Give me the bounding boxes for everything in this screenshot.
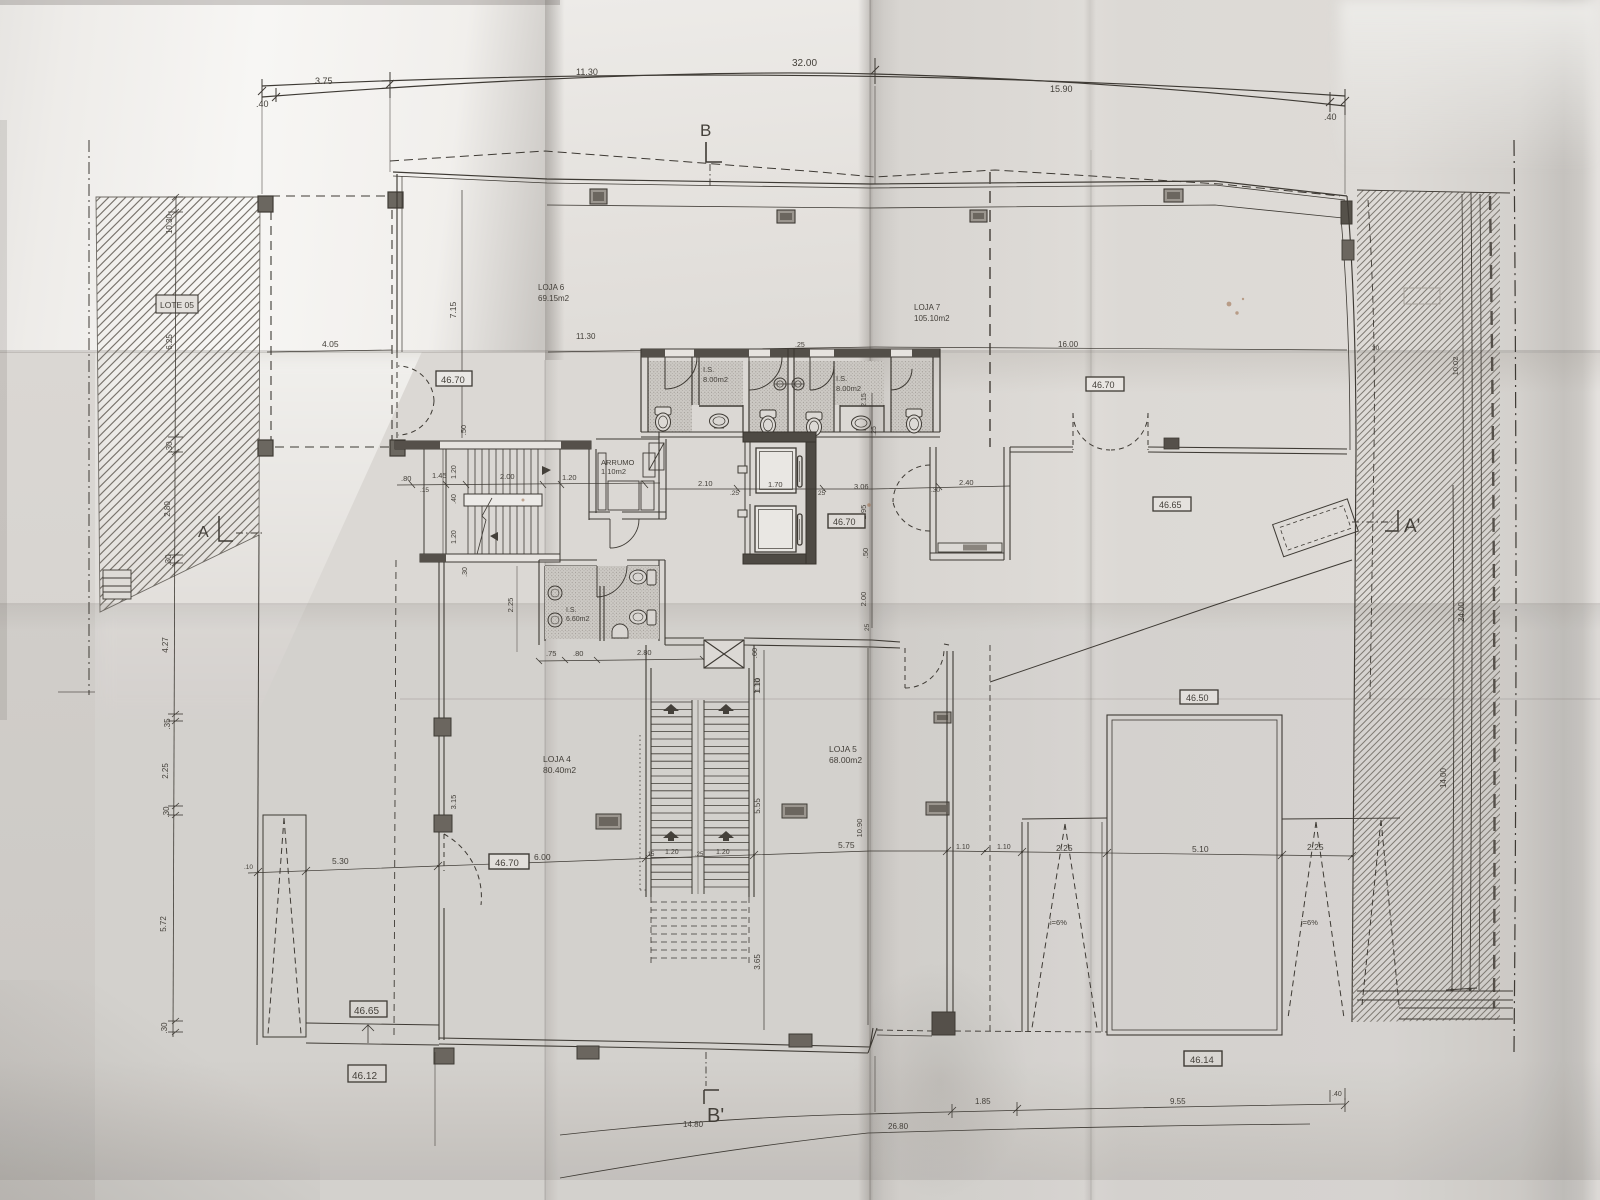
svg-text:2.40: 2.40 — [959, 478, 974, 487]
svg-text:2.80: 2.80 — [163, 501, 172, 517]
svg-text:105.10m2: 105.10m2 — [914, 314, 950, 323]
svg-text:LOJA 5: LOJA 5 — [829, 744, 857, 754]
svg-text:.30: .30 — [162, 806, 171, 818]
svg-text:2.00: 2.00 — [859, 592, 868, 607]
svg-text:11.30: 11.30 — [576, 67, 598, 77]
svg-text:16.00: 16.00 — [1058, 340, 1079, 349]
svg-text:1.10m2: 1.10m2 — [601, 467, 626, 476]
svg-text:.25: .25 — [730, 490, 739, 497]
svg-text:6.25: 6.25 — [165, 334, 174, 350]
svg-text:7.15: 7.15 — [448, 301, 458, 318]
svg-text:5.10: 5.10 — [1192, 844, 1209, 854]
svg-text:3.75: 3.75 — [315, 76, 333, 86]
svg-text:.30: .30 — [165, 441, 174, 453]
svg-text:2.15: 2.15 — [861, 393, 868, 407]
svg-text:25: 25 — [818, 490, 826, 497]
svg-text:LOJA 6: LOJA 6 — [538, 283, 565, 292]
svg-text:1.70: 1.70 — [768, 480, 783, 489]
svg-text:.75: .75 — [546, 649, 556, 658]
svg-text:15.90: 15.90 — [1050, 84, 1073, 94]
svg-text:.25: .25 — [795, 342, 805, 349]
svg-text:2.25: 2.25 — [161, 763, 170, 779]
svg-text:5.55: 5.55 — [753, 798, 762, 814]
svg-text:1.10: 1.10 — [956, 844, 970, 851]
svg-text:.35: .35 — [163, 718, 172, 730]
svg-text:.25: .25 — [695, 852, 704, 858]
svg-text:3.06: 3.06 — [854, 482, 869, 491]
svg-text:14.80: 14.80 — [683, 1120, 704, 1129]
svg-text:I.S.: I.S. — [566, 607, 577, 614]
svg-text:1.20: 1.20 — [665, 849, 679, 856]
svg-text:10.30: 10.30 — [165, 213, 174, 234]
svg-text:.80: .80 — [401, 474, 411, 483]
svg-text:9.55: 9.55 — [1170, 1097, 1186, 1106]
svg-text:LOTE 05: LOTE 05 — [160, 300, 194, 310]
svg-text:80.40m2: 80.40m2 — [543, 765, 576, 775]
svg-text:5.30: 5.30 — [332, 856, 349, 866]
svg-text:3.15: 3.15 — [449, 795, 458, 810]
svg-text:LOJA 7: LOJA 7 — [914, 303, 941, 312]
svg-text:I.S.: I.S. — [703, 365, 714, 374]
svg-text:6.00: 6.00 — [534, 852, 551, 862]
svg-text:1.20: 1.20 — [562, 473, 577, 482]
svg-text:.40: .40 — [256, 99, 269, 109]
svg-text:2.25: 2.25 — [1307, 842, 1324, 852]
svg-text:1.20: 1.20 — [716, 849, 730, 856]
svg-text:2.10: 2.10 — [698, 479, 713, 488]
svg-text:26.80: 26.80 — [888, 1122, 909, 1131]
svg-text:1.10: 1.10 — [753, 678, 762, 694]
svg-text:2.25: 2.25 — [1056, 843, 1073, 853]
svg-text:.10: .10 — [244, 864, 253, 871]
svg-text:30: 30 — [1372, 345, 1380, 352]
svg-text:.80: .80 — [573, 649, 583, 658]
svg-text:46.65: 46.65 — [1159, 500, 1182, 510]
svg-text:.50: .50 — [459, 425, 468, 435]
svg-text:5.72: 5.72 — [159, 916, 168, 932]
svg-text:46.50: 46.50 — [1186, 693, 1209, 703]
svg-text:46.70: 46.70 — [495, 858, 519, 869]
svg-text:LOJA 4: LOJA 4 — [543, 754, 571, 764]
svg-text:.30: .30 — [160, 1022, 169, 1034]
svg-text:B: B — [700, 121, 711, 140]
svg-text:i=6%: i=6% — [1301, 918, 1318, 927]
svg-text:6.60m2: 6.60m2 — [566, 616, 589, 623]
svg-text:.40: .40 — [1332, 1091, 1342, 1098]
svg-text:10.02: 10.02 — [1451, 357, 1460, 376]
svg-text:A: A — [198, 524, 209, 541]
svg-text:25: 25 — [864, 623, 871, 631]
svg-text:2.80: 2.80 — [637, 648, 652, 657]
svg-text:1.20: 1.20 — [451, 465, 458, 479]
svg-text:1.20: 1.20 — [451, 530, 458, 544]
svg-text:46.65: 46.65 — [354, 1006, 379, 1017]
svg-text:8.00m2: 8.00m2 — [836, 384, 861, 393]
svg-text:1.10: 1.10 — [997, 844, 1011, 851]
svg-text:A': A' — [1404, 516, 1420, 537]
svg-text:10.90: 10.90 — [855, 819, 864, 838]
svg-text:.50: .50 — [861, 548, 870, 558]
svg-text:14.00: 14.00 — [1439, 767, 1448, 788]
svg-text:.40: .40 — [451, 494, 458, 504]
svg-text:3.65: 3.65 — [753, 954, 762, 970]
svg-text:.30: .30 — [164, 554, 173, 566]
svg-text:24.00: 24.00 — [1457, 601, 1466, 622]
svg-text:i=6%: i=6% — [1050, 918, 1067, 927]
svg-text:2.00: 2.00 — [500, 472, 515, 481]
svg-text:B': B' — [707, 1105, 724, 1127]
svg-text:.30: .30 — [462, 567, 469, 577]
svg-text:1.45: 1.45 — [432, 471, 447, 480]
svg-text:46.12: 46.12 — [352, 1071, 377, 1082]
svg-text:8.00m2: 8.00m2 — [703, 375, 728, 384]
svg-text:2.25: 2.25 — [506, 598, 515, 613]
svg-text:.15: .15 — [420, 487, 429, 494]
svg-text:69.15m2: 69.15m2 — [538, 294, 570, 303]
svg-text:.40: .40 — [1324, 112, 1337, 122]
svg-text:46.70: 46.70 — [441, 375, 465, 386]
svg-text:11.30: 11.30 — [576, 332, 596, 341]
svg-text:46.70: 46.70 — [833, 517, 856, 527]
svg-text:4.27: 4.27 — [161, 637, 170, 653]
svg-text:4.05: 4.05 — [322, 339, 339, 349]
svg-text:I.S.: I.S. — [836, 374, 847, 383]
svg-text:46.70: 46.70 — [1092, 380, 1115, 390]
svg-text:.15: .15 — [646, 852, 655, 858]
svg-text:5.75: 5.75 — [838, 840, 855, 850]
svg-text:1.85: 1.85 — [975, 1097, 991, 1106]
svg-text:32.00: 32.00 — [792, 58, 817, 69]
svg-text:46.14: 46.14 — [1190, 1055, 1214, 1066]
svg-text:68.00m2: 68.00m2 — [829, 755, 862, 765]
